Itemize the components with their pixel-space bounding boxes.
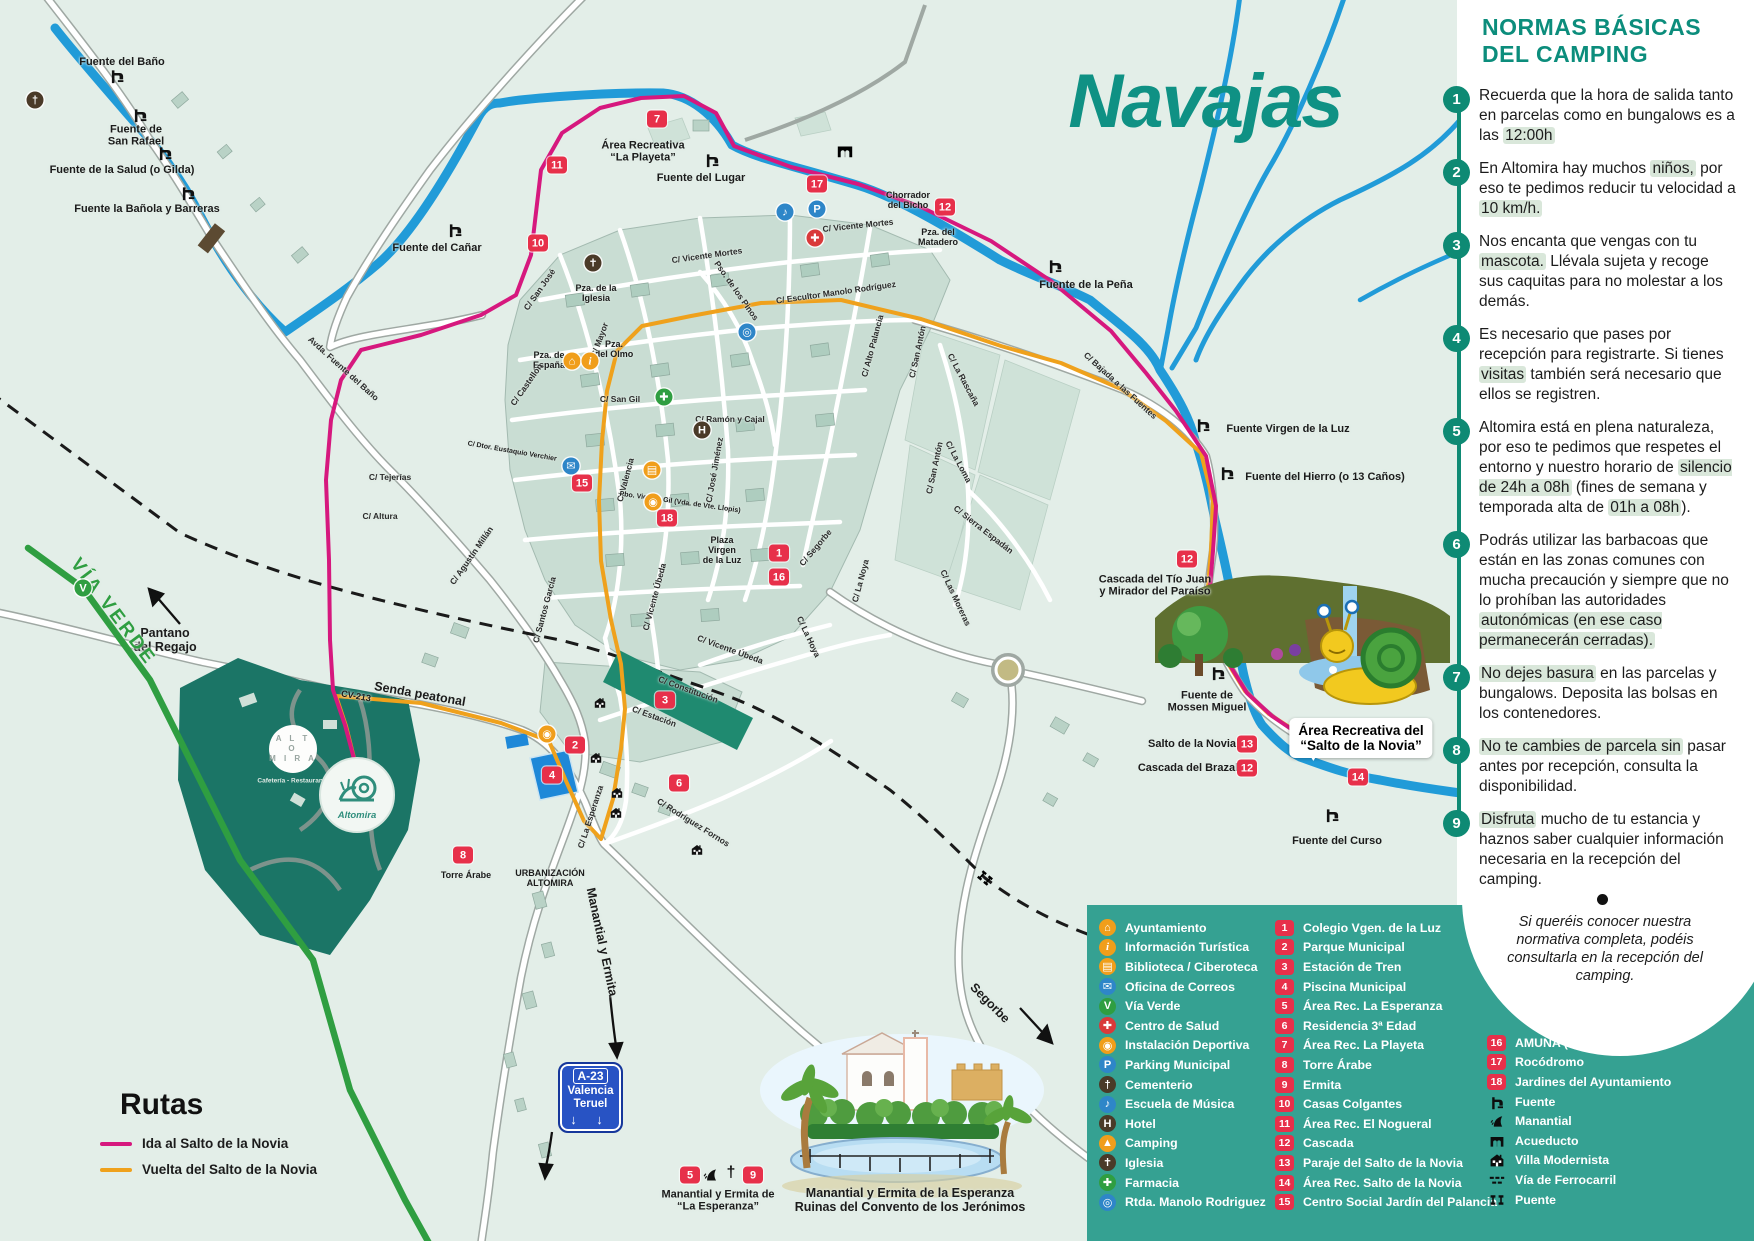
legend-row: Acueducto	[1487, 1131, 1671, 1151]
roundabout	[996, 658, 1020, 682]
legend-label: Jardines del Ayuntamiento	[1515, 1075, 1671, 1089]
puente-legend-icon	[1487, 1191, 1506, 1208]
legend-badge-17: 17	[1487, 1054, 1506, 1070]
rule-number: 1	[1443, 86, 1470, 113]
legend-row: 8Torre Árabe	[1275, 1055, 1497, 1075]
legend-row: 7Área Rec. La Playeta	[1275, 1036, 1497, 1056]
rule-text: Nos encanta que vengas con tu mascota. L…	[1479, 232, 1737, 312]
fuente-legend-icon	[1487, 1093, 1506, 1110]
legend-label: Área Rec. Salto de la Novia	[1303, 1176, 1462, 1190]
legend-badge-4: 4	[1275, 979, 1294, 995]
legend-label: Información Turística	[1125, 940, 1249, 954]
legend-label: Paraje del Salto de la Novia	[1303, 1156, 1463, 1170]
legend-label: Hotel	[1125, 1117, 1156, 1131]
navajas-map-poster: Navajas A L T O M I R A Cafetería - Rest…	[0, 0, 1754, 1241]
legend-label: Área Rec. El Nogueral	[1303, 1117, 1431, 1131]
rule-number: 2	[1443, 159, 1470, 186]
legend-badge-7: 7	[1275, 1037, 1294, 1053]
legend-badge-10: 10	[1275, 1096, 1294, 1112]
legend-label: Vía de Ferrocarril	[1515, 1173, 1616, 1187]
legend-row: 5Área Rec. La Esperanza	[1275, 996, 1497, 1016]
legend-badge-6: 6	[1275, 1018, 1294, 1034]
rule-item-8: 8No te cambies de parcela sin pasar ante…	[1443, 737, 1743, 797]
camping-logo-text: Altomira	[338, 810, 377, 821]
legend-label: Colegio Vgen. de la Luz	[1303, 921, 1441, 935]
legend-row: 18Jardines del Ayuntamiento	[1487, 1072, 1671, 1092]
legend-row: ♪Escuela de Música	[1099, 1094, 1266, 1114]
legend-badge-14: 14	[1275, 1175, 1294, 1191]
legend-label: Ayuntamiento	[1125, 921, 1207, 935]
rule-item-4: 4Es necesario que pases por recepción pa…	[1443, 325, 1743, 405]
legend-row: Vía de Ferrocarril	[1487, 1170, 1671, 1190]
legend-label: Piscina Municipal	[1303, 980, 1406, 994]
legend-label: Cascada	[1303, 1136, 1354, 1150]
legend-row: ✚Centro de Salud	[1099, 1016, 1266, 1036]
legend-label: Rtda. Manolo Rodriguez	[1125, 1195, 1266, 1209]
legend-label: Vía Verde	[1125, 999, 1180, 1013]
legend-label: Escuela de Música	[1125, 1097, 1234, 1111]
a23-code: A-23	[573, 1068, 607, 1084]
rule-text: Altomira está en plena naturaleza, por e…	[1479, 418, 1737, 518]
legend-label: Iglesia	[1125, 1156, 1163, 1170]
legend-label: Ermita	[1303, 1078, 1341, 1092]
rule-item-3: 3Nos encanta que vengas con tu mascota. …	[1443, 232, 1743, 312]
rules-list: 1Recuerda que la hora de salida tanto en…	[1443, 86, 1743, 890]
rule-number: 8	[1443, 737, 1470, 764]
legend-badge-15: 15	[1275, 1194, 1294, 1210]
legend-row: ✝Iglesia	[1099, 1153, 1266, 1173]
legend-row: iInformación Turística	[1099, 938, 1266, 958]
legend-label: Puente	[1515, 1193, 1556, 1207]
legend-badge-16: 16	[1487, 1035, 1506, 1051]
salto-area-callout: Área Recreativa del “Salto de la Novia”	[1289, 718, 1432, 758]
legend-badge-8: 8	[1275, 1057, 1294, 1073]
rules-title: NORMAS BÁSICASDEL CAMPING	[1482, 14, 1743, 68]
ruta-row: Vuelta del Salto de la Novia	[100, 1162, 317, 1177]
legend-row: 3Estación de Tren	[1275, 957, 1497, 977]
convento-illustration	[752, 1028, 1052, 1200]
rtda-manolo-rodriguez-icon: ◎	[1099, 1194, 1116, 1211]
legend-label: Biblioteca / Ciberoteca	[1125, 960, 1258, 974]
legend-label: Oficina de Correos	[1125, 980, 1235, 994]
farmacia-icon: ✚	[1099, 1174, 1116, 1191]
rail-legend-icon	[1487, 1171, 1506, 1188]
legend-row: 4Piscina Municipal	[1275, 977, 1497, 997]
acueducto-legend-icon	[1487, 1132, 1506, 1149]
cementerio-icon: †	[1099, 1076, 1116, 1093]
biblioteca-ciberoteca-icon: ▤	[1099, 958, 1116, 975]
legend-label: Casas Colgantes	[1303, 1097, 1402, 1111]
a23-destination-1: Valencia	[567, 1085, 613, 1098]
legend-column-numbers-1: 1Colegio Vgen. de la Luz2Parque Municipa…	[1275, 918, 1497, 1212]
rule-text: Disfruta mucho de tu estancia y haznos s…	[1479, 810, 1737, 890]
legend-label: Instalación Deportiva	[1125, 1038, 1249, 1052]
legend-row: VVía Verde	[1099, 996, 1266, 1016]
rule-number: 6	[1443, 531, 1470, 558]
legend-row: ◎Rtda. Manolo Rodriguez	[1099, 1192, 1266, 1212]
rules-note: Si queréis conocer nuestra normativa com…	[1494, 913, 1716, 985]
legend-row: 11Área Rec. El Nogueral	[1275, 1114, 1497, 1134]
town-title: Navajas	[1040, 58, 1370, 145]
rutas-title: Rutas	[120, 1088, 317, 1122]
centro-de-salud-icon: ✚	[1099, 1017, 1116, 1034]
legend-badge-11: 11	[1275, 1116, 1294, 1132]
rule-text: Es necesario que pases por recepción par…	[1479, 325, 1737, 405]
snail-logo-icon	[330, 770, 384, 812]
parking-municipal-icon: P	[1099, 1056, 1116, 1073]
rule-item-9: 9Disfruta mucho de tu estancia y haznos …	[1443, 810, 1743, 890]
legend-badge-12: 12	[1275, 1135, 1294, 1151]
legend-label: Estación de Tren	[1303, 960, 1401, 974]
salto-illustration	[1155, 558, 1450, 730]
legend-label: Centro Social Jardín del Palancia	[1303, 1195, 1497, 1209]
rule-item-6: 6Podrás utilizar las barbacoas que están…	[1443, 531, 1743, 651]
legend-label: Torre Árabe	[1303, 1058, 1372, 1072]
legend-badge-18: 18	[1487, 1074, 1506, 1090]
legend-row: HHotel	[1099, 1114, 1266, 1134]
ruta-label: Ida al Salto de la Novia	[142, 1136, 288, 1151]
rule-item-5: 5Altomira está en plena naturaleza, por …	[1443, 418, 1743, 518]
legend-row: 14Área Rec. Salto de la Novia	[1275, 1173, 1497, 1193]
legend-row: Villa Modernista	[1487, 1151, 1671, 1171]
instalaci-n-deportiva-icon: ◉	[1099, 1037, 1116, 1054]
camping-icon: ▲	[1099, 1135, 1116, 1152]
legend-row: 15Centro Social Jardín del Palancia	[1275, 1192, 1497, 1212]
rule-number: 4	[1443, 325, 1470, 352]
rule-item-1: 1Recuerda que la hora de salida tanto en…	[1443, 86, 1743, 146]
legend-column-icons: ⌂AyuntamientoiInformación Turística▤Bibl…	[1099, 918, 1266, 1212]
rule-text: Podrás utilizar las barbacoas que están …	[1479, 531, 1737, 651]
legend-row: 13Paraje del Salto de la Novia	[1275, 1153, 1497, 1173]
legend-row: 10Casas Colgantes	[1275, 1094, 1497, 1114]
altomira-restaurant-logo: A L T O M I R A	[269, 725, 317, 773]
rule-text: Recuerda que la hora de salida tanto en …	[1479, 86, 1737, 146]
legend-label: Rocódromo	[1515, 1055, 1584, 1069]
legend-row: ✉Oficina de Correos	[1099, 977, 1266, 997]
rule-number: 5	[1443, 418, 1470, 445]
legend-label: Área Rec. La Esperanza	[1303, 999, 1442, 1013]
legend-row: ▲Camping	[1099, 1134, 1266, 1154]
legend-row: 2Parque Municipal	[1275, 938, 1497, 958]
oficina-de-correos-icon: ✉	[1099, 978, 1116, 995]
legend-label: Acueducto	[1515, 1134, 1579, 1148]
legend-label: Villa Modernista	[1515, 1153, 1609, 1167]
legend-label: Fuente	[1515, 1095, 1555, 1109]
legend-row: Fuente	[1487, 1092, 1671, 1112]
legend-label: Área Rec. La Playeta	[1303, 1038, 1424, 1052]
legend-label: Farmacia	[1125, 1176, 1179, 1190]
legend-label: Cementerio	[1125, 1078, 1193, 1092]
rule-text: En Altomira hay muchos niños, por eso te…	[1479, 159, 1737, 219]
legend-row: ▤Biblioteca / Ciberoteca	[1099, 957, 1266, 977]
legend-row: Manantial	[1487, 1111, 1671, 1131]
rule-text: No dejes basura en las parcelas y bungal…	[1479, 664, 1737, 724]
legend-label: Parque Municipal	[1303, 940, 1405, 954]
a23-highway-sign: A-23 Valencia Teruel ↓ ↓	[558, 1062, 623, 1133]
legend-label: Centro de Salud	[1125, 1019, 1219, 1033]
legend-badge-13: 13	[1275, 1155, 1294, 1171]
legend-badge-1: 1	[1275, 920, 1294, 936]
ruta-row: Ida al Salto de la Novia	[100, 1136, 317, 1151]
legend-label: Residencia 3ª Edad	[1303, 1019, 1416, 1033]
camping-rules: NORMAS BÁSICASDEL CAMPING 1Recuerda que …	[1443, 14, 1743, 890]
legend-column-numbers-2: 16AMUNA (Auditorio)17Rocódromo18Jardines…	[1487, 1033, 1671, 1209]
rule-number: 7	[1443, 664, 1470, 691]
escuela-de-m-sica-icon: ♪	[1099, 1096, 1116, 1113]
legend-label: Parking Municipal	[1125, 1058, 1230, 1072]
legend-row: 6Residencia 3ª Edad	[1275, 1016, 1497, 1036]
legend-badge-3: 3	[1275, 959, 1294, 975]
altomira-restaurant-subtitle: Cafetería - Restaurante	[257, 778, 328, 785]
legend-label: Camping	[1125, 1136, 1178, 1150]
ayuntamiento-icon: ⌂	[1099, 919, 1116, 936]
legend-row: ✚Farmacia	[1099, 1173, 1266, 1193]
legend-badge-2: 2	[1275, 939, 1294, 955]
ruta-label: Vuelta del Salto de la Novia	[142, 1162, 317, 1177]
rule-text: No te cambies de parcela sin pasar antes…	[1479, 737, 1737, 797]
legend-row: PParking Municipal	[1099, 1055, 1266, 1075]
hotel-icon: H	[1099, 1115, 1116, 1132]
legend-row: 9Ermita	[1275, 1075, 1497, 1095]
legend-row: 12Cascada	[1275, 1134, 1497, 1154]
rule-item-2: 2En Altomira hay muchos niños, por eso t…	[1443, 159, 1743, 219]
iglesia-icon: ✝	[1099, 1154, 1116, 1171]
v-a-verde-icon: V	[1099, 998, 1116, 1015]
manantial-legend-icon	[1487, 1113, 1506, 1130]
villa-legend-icon	[1487, 1152, 1506, 1169]
ruta-color-line	[100, 1142, 132, 1146]
legend-row: Puente	[1487, 1190, 1671, 1210]
legend-row: †Cementerio	[1099, 1075, 1266, 1095]
note-bullet	[1597, 894, 1608, 905]
legend-row: ◉Instalación Deportiva	[1099, 1036, 1266, 1056]
altomira-camping-logo: Altomira	[319, 757, 395, 833]
acueducto-icon	[838, 147, 852, 158]
a23-arrows: ↓ ↓	[570, 1112, 611, 1127]
legend-label: Manantial	[1515, 1114, 1572, 1128]
legend-row: 17Rocódromo	[1487, 1053, 1671, 1073]
legend-row: ⌂Ayuntamiento	[1099, 918, 1266, 938]
rutas-legend: Rutas Ida al Salto de la NoviaVuelta del…	[100, 1088, 317, 1177]
rule-number: 3	[1443, 232, 1470, 259]
a23-destination-2: Teruel	[574, 1098, 608, 1111]
informaci-n-tur-stica-icon: i	[1099, 939, 1116, 956]
legend-badge-9: 9	[1275, 1077, 1294, 1093]
rule-item-7: 7No dejes basura en las parcelas y bunga…	[1443, 664, 1743, 724]
ruta-color-line	[100, 1168, 132, 1172]
rule-number: 9	[1443, 810, 1470, 837]
legend-badge-5: 5	[1275, 998, 1294, 1014]
